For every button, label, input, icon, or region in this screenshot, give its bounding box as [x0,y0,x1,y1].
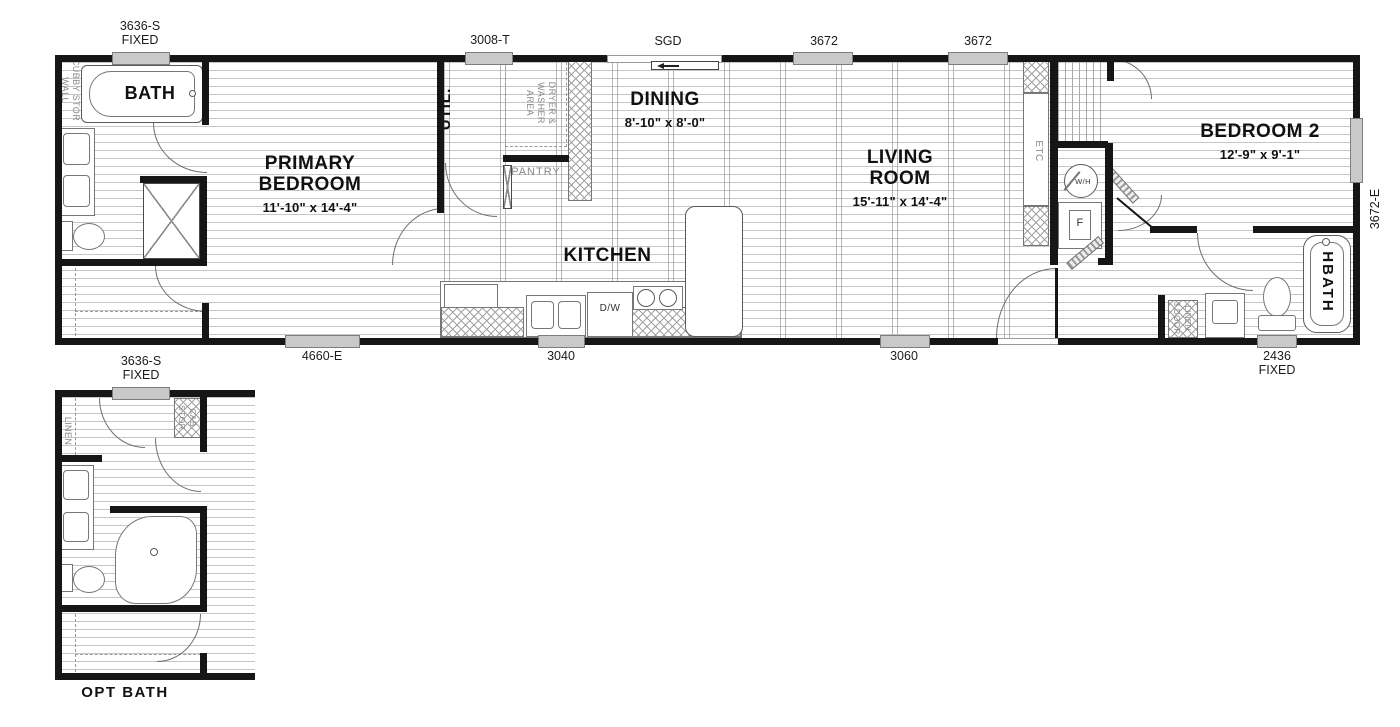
wall-bath-bottom [55,259,207,266]
wall-cubby-line2: CUBBY STOR [70,52,81,128]
window-3060-label: 3060 [864,349,944,363]
window-2436-line2: FIXED [1237,363,1317,377]
wall-bedroom2-left-stub [1107,55,1114,81]
kitchen-text: KITCHEN [564,245,652,266]
pantry-label-text: PANTRY [511,166,561,178]
water-heater-label-text: W/H [1075,177,1091,186]
window-3672-a [793,52,853,65]
wall-shower-top [140,176,207,183]
wall-wardrobe-stub [202,303,209,338]
sgd-label: SGD [628,34,708,48]
wall-foyer-right [1105,143,1113,263]
kitchen-sink-basin-1 [531,301,554,329]
opt-window-label: 3636-S FIXED [101,354,181,382]
opt-wall-bottom [55,673,255,680]
window-3672b-label: 3672 [938,34,1018,48]
kitchen-island [685,206,743,337]
burner-2 [659,289,677,307]
sink-primary-2 [63,175,90,207]
furnace-label-text: F [1076,217,1083,229]
window-3040 [538,335,585,348]
window-3672e-text: 3672-E [1368,189,1382,229]
window-3672e [1350,118,1363,183]
burner-1 [637,289,655,307]
opt-window-line1: 3636-S [101,354,181,368]
bedroom2-dims: 12'-9" x 9'-1" [1175,144,1345,165]
dryer-washer-label: DRYER & WASHER AREA [535,61,557,145]
bedroom2-text: BEDROOM 2 [1175,121,1345,142]
primary-dims: 11'-10" x 14'-4" [230,197,390,218]
wardrobe-dash-v [75,268,76,336]
shower-primary [143,183,200,259]
opt-closet-dash-h [75,654,201,655]
hbath-label: HBATH [1313,244,1333,320]
window-4660e-text: 4660-E [302,349,342,363]
etc-label-text: ETC [1033,140,1044,161]
primary-line2: BEDROOM [230,174,390,195]
etc-label: ETC [1028,127,1044,175]
wall-bath-right [202,55,209,125]
wall-right [1353,55,1360,345]
wall-left [55,55,62,345]
dining-text: DINING [585,89,745,110]
primary-line1: PRIMARY [230,153,390,174]
sgd-text: SGD [654,34,681,48]
bathtub-faucet [189,90,196,97]
opt-bath-floorplan: LINEN STOR. CAB. 3636-S [55,390,260,700]
window-3008t-label: 3008-T [450,33,530,47]
bath-label-text: BATH [125,83,176,103]
window-3060-text: 3060 [890,349,918,363]
wall-shower-right [200,176,207,266]
dryer-washer-line1: DRYER & WASHER [535,61,557,145]
dishwasher [587,292,633,337]
linen3-line2: LINEN [1182,293,1193,343]
dining-label: DINING 8'-10" x 8'-0" [585,89,745,133]
bath-label: BATH [110,83,190,104]
etc-hatch-bottom [1023,206,1049,246]
opt-window-line2: FIXED [101,368,181,382]
opt-wall-closet-stub [200,653,207,673]
window-2436-label: 2436 FIXED [1237,349,1317,377]
opt-stor-cab-label: STOR. CAB. [177,395,197,443]
sgd-arrow-line [663,65,679,67]
window-2436-line1: 2436 [1237,349,1317,363]
water-heater-label: W/H [1070,176,1096,187]
opt-tub [115,516,197,604]
wall-bedroom2-bottom-left [1150,226,1197,233]
window-3008t [465,52,513,65]
counter-hatch-left [441,307,524,337]
opt-sink-1 [63,470,89,500]
dishwasher-label: D/W [592,303,628,314]
linen3-label: 3 DOOR LINEN [1172,293,1192,343]
window-3672-b [948,52,1008,65]
window-3636s-line2: FIXED [100,33,180,47]
opt-wall-left [55,390,62,680]
opt-linen-dash [75,398,76,455]
window-3672e-label: 3672-E [1368,184,1382,234]
living-room-label: LIVING ROOM 15'-11" x 14'-4" [820,147,980,212]
furnace-label: F [1069,218,1091,229]
bedroom2-closet-rod [1058,57,1103,141]
window-3636s-line1: 3636-S [100,19,180,33]
opt-toilet-bowl [73,566,105,593]
wall-util-left [437,55,444,213]
window-3672b-text: 3672 [964,34,992,48]
window-3040-label: 3040 [521,349,601,363]
front-door-opening [998,338,1058,345]
living-dims: 15'-11" x 14'-4" [820,191,980,212]
base-cabinet [444,284,498,308]
opt-tub-drain [150,548,158,556]
hbath-label-text: HBATH [1319,251,1336,312]
pantry-label: PANTRY [507,167,565,178]
window-4660e [285,335,360,348]
window-4660e-label: 4660-E [282,349,362,363]
opt-bath-title: OPT BATH [65,682,185,703]
opt-wall-tub-right [200,506,207,612]
window-3672a-text: 3672 [810,34,838,48]
opt-sink-2 [63,512,89,542]
opt-bath-title-text: OPT BATH [81,684,169,701]
window-3040-text: 3040 [547,349,575,363]
front-door-leaf [1055,268,1058,338]
wall-etc [1050,55,1058,265]
window-3008t-text: 3008-T [470,33,510,47]
sink-primary-1 [63,133,90,165]
living-line1: LIVING [820,147,980,168]
window-3636s-label: 3636-S FIXED [100,19,180,47]
floorplan-canvas: BATH WALL CUBBY STOR UTIL. DRYER & WASHE… [0,0,1400,727]
window-3672a-label: 3672 [784,34,864,48]
wall-hbath-left [1158,295,1165,338]
wall-bedroom2-bottom-right [1253,226,1353,233]
opt-wall-tub-top [110,506,207,513]
dryer-washer-line2: AREA [524,61,535,145]
opt-closet-dash-v [75,614,76,672]
opt-wall-tub-bottom [55,605,207,612]
wall-bottom [55,338,1360,345]
kitchen-label: KITCHEN [535,245,680,266]
opt-linen-text: LINEN [63,417,73,446]
window-3636s [112,52,170,65]
opt-window-3636s [112,387,170,400]
etc-hatch-top [1023,57,1049,93]
kitchen-sink-basin-2 [558,301,581,329]
bedroom2-label: BEDROOM 2 12'-9" x 9'-1" [1175,121,1345,165]
linen3-line1: 3 DOOR [1171,293,1182,343]
wall-pantry-top [503,155,569,162]
dining-dims: 8'-10" x 8'-0" [585,112,745,133]
dishwasher-label-text: D/W [600,303,621,314]
hbath-sink [1212,300,1238,324]
wall-closet-mid [1052,141,1108,148]
wardrobe-dash-h [75,311,203,312]
primary-bedroom-label: PRIMARY BEDROOM 11'-10" x 14'-4" [230,153,390,218]
toilet-primary-bowl [73,223,105,250]
opt-wall-linen [58,455,102,462]
opt-stor-line1: STOR. [176,395,187,443]
opt-wall-storcab-right [200,397,207,452]
hbath-toilet-tank [1258,315,1296,331]
main-floorplan: BATH WALL CUBBY STOR UTIL. DRYER & WASHE… [55,55,1360,345]
hbath-toilet-bowl [1263,277,1291,317]
window-3060 [880,335,930,348]
living-line2: ROOM [820,168,980,189]
opt-stor-line2: CAB. [187,395,198,443]
window-2436 [1257,335,1297,348]
